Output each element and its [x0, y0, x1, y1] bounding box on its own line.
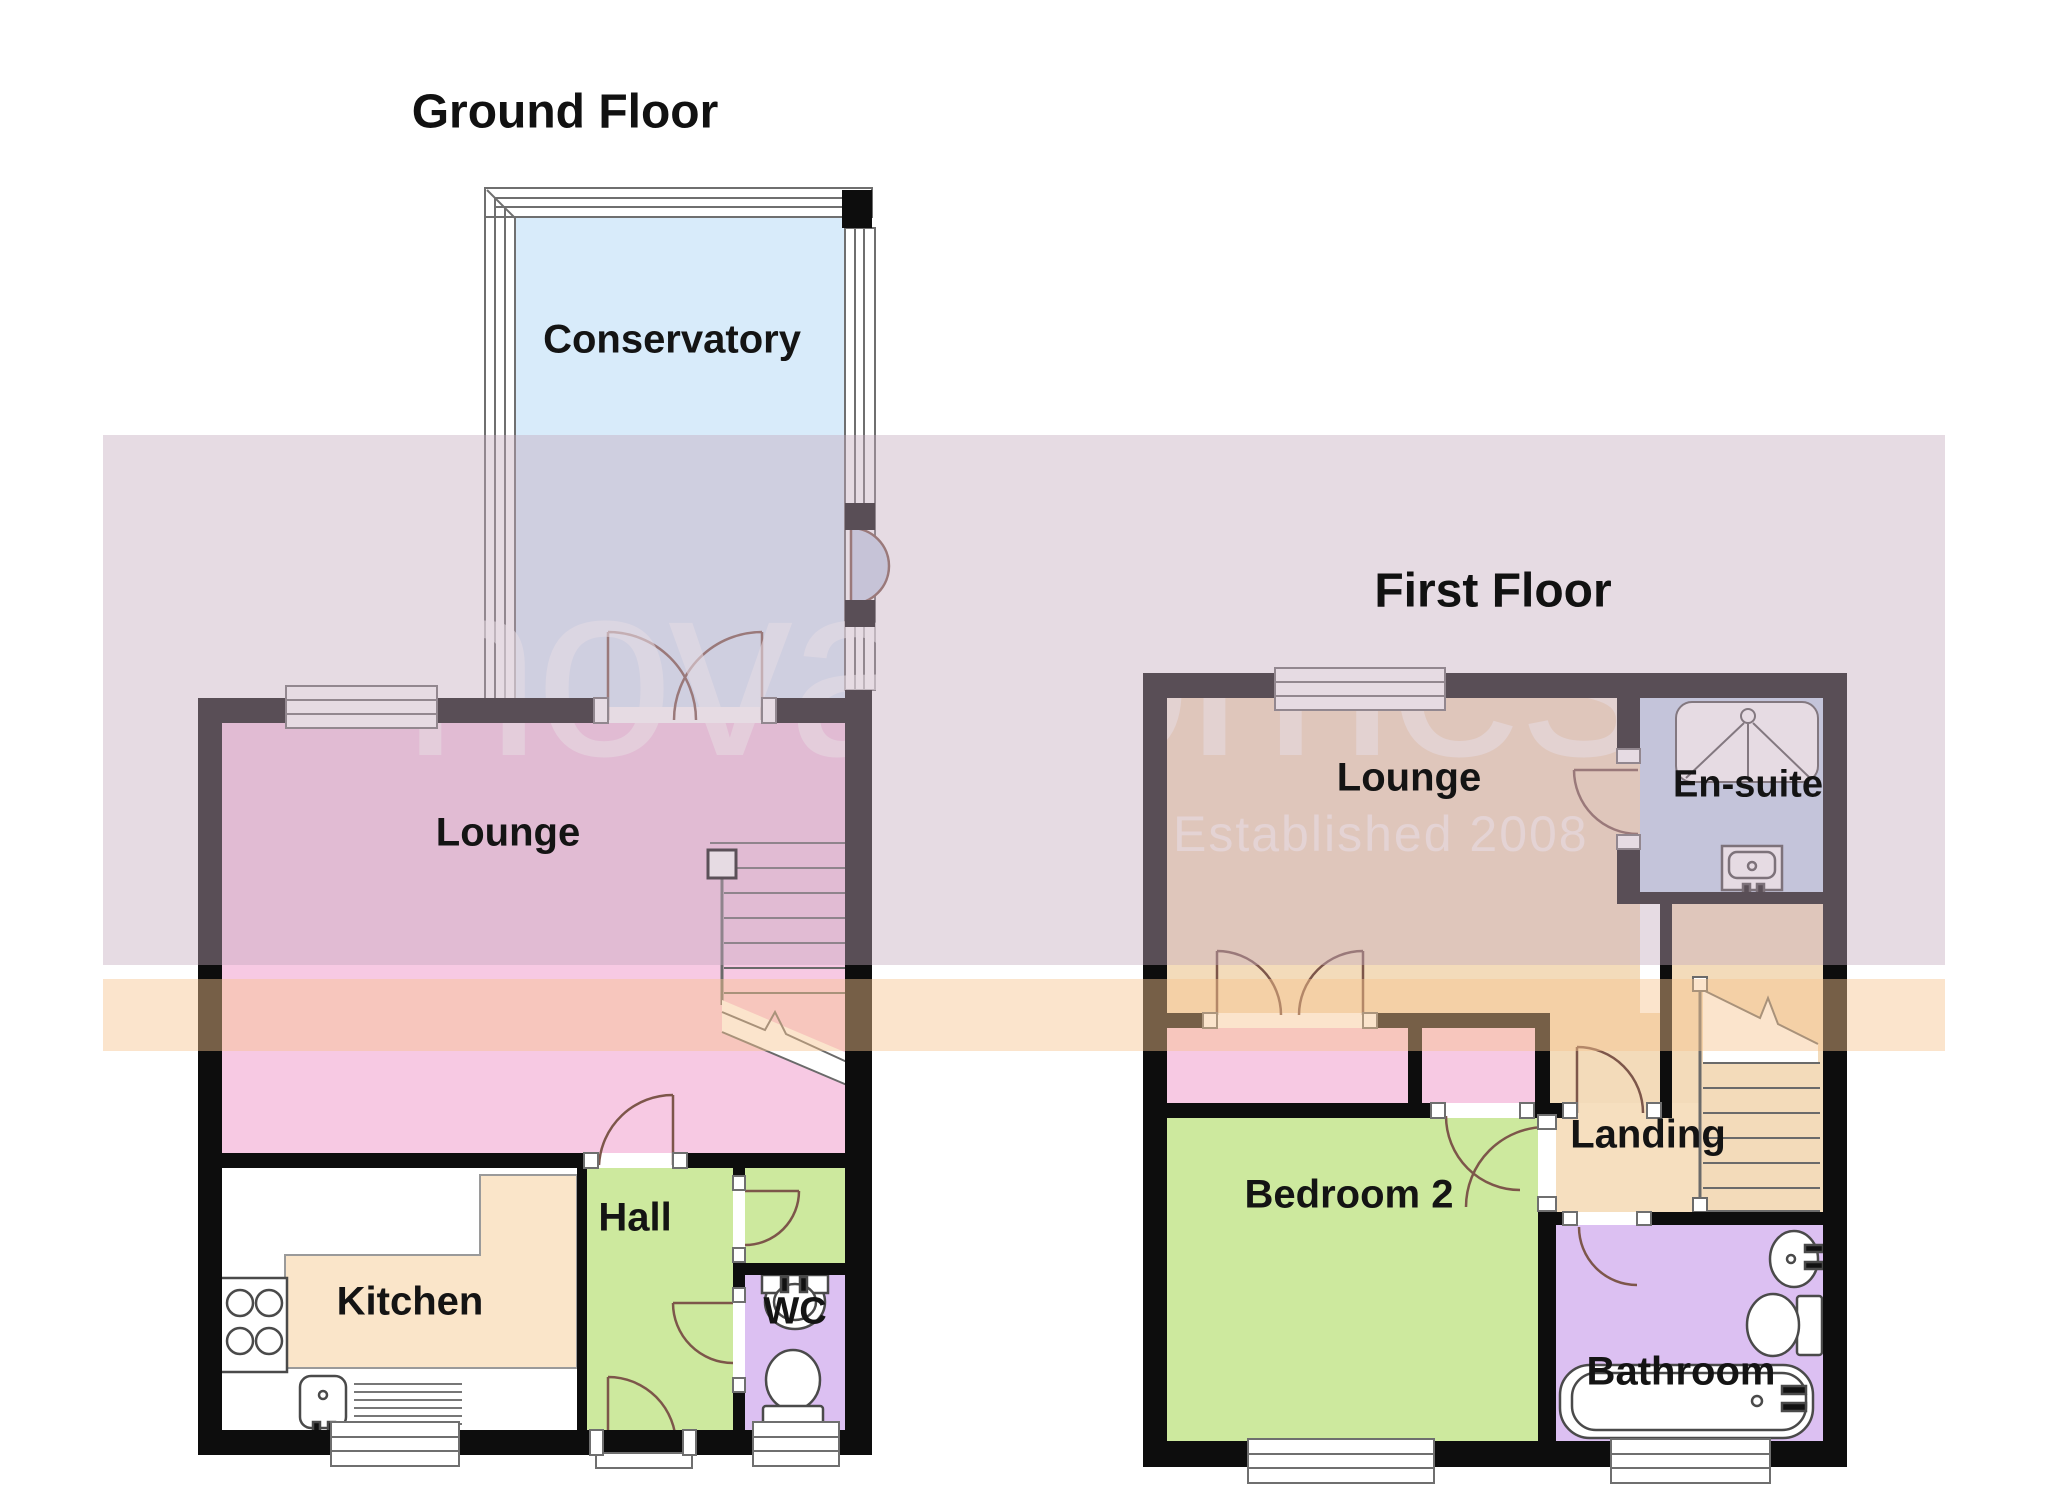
bath-icon	[1560, 1365, 1813, 1438]
hob-icon	[220, 1278, 287, 1372]
watermark-band-orange	[103, 979, 1945, 1051]
store-floor	[745, 1168, 845, 1263]
bedroom2-floor	[1167, 1118, 1538, 1443]
front-door-threshold	[596, 1453, 692, 1468]
watermark-band-pink	[103, 435, 1945, 965]
landing-floor	[1556, 1103, 1702, 1212]
window-icon	[331, 1422, 459, 1466]
wc-basin-icon	[762, 1275, 828, 1329]
window-icon	[1248, 1439, 1434, 1483]
floorplan-graphics: novahomes Established 2008	[0, 0, 2048, 1489]
floorplan-canvas: novahomes Established 2008	[0, 0, 2048, 1489]
wc-toilet-icon	[763, 1350, 823, 1430]
window-icon	[753, 1422, 839, 1466]
window-icon	[1611, 1439, 1770, 1483]
bathroom-toilet-icon	[1747, 1294, 1822, 1356]
